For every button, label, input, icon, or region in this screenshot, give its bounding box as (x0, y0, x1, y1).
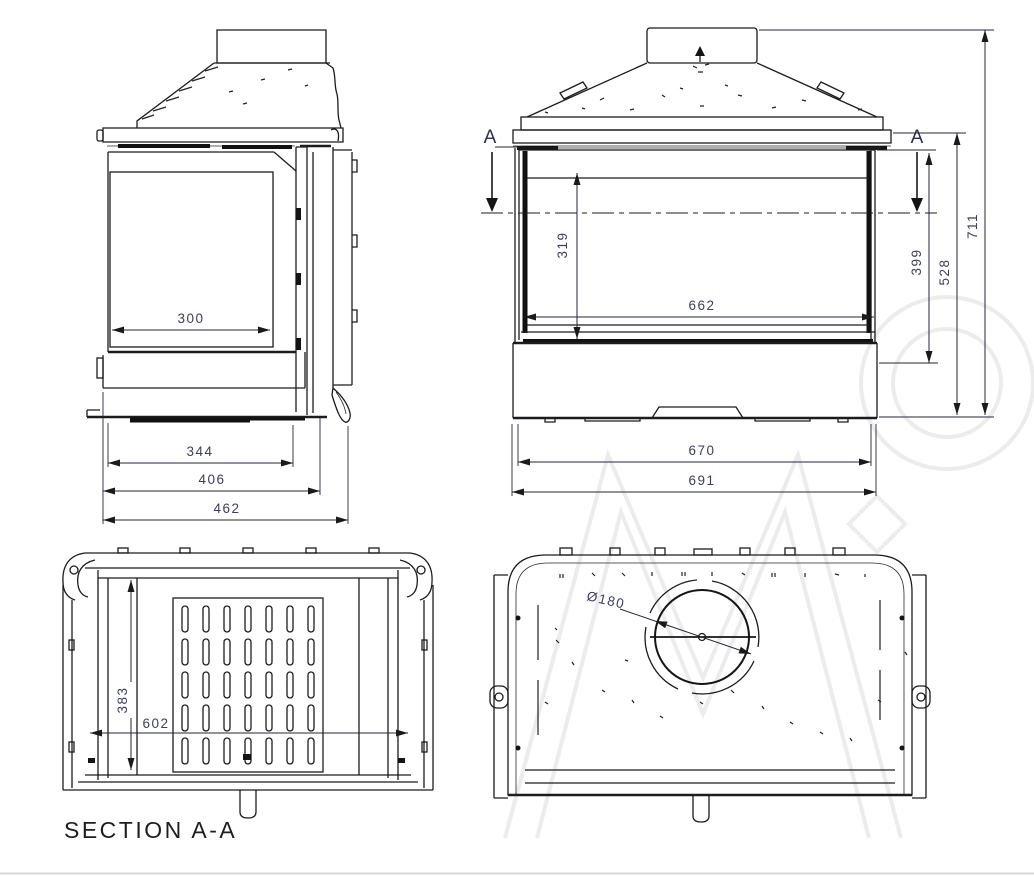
front-dimensions: 319 662 670 691 399 528 711 (512, 30, 994, 496)
front-body (481, 148, 937, 343)
front-hood (521, 63, 883, 130)
watermark-logo (505, 297, 1033, 838)
dim-side-base-width: 344 (186, 444, 213, 459)
dim-front-body-height: 528 (937, 258, 952, 285)
section-grate (173, 598, 323, 772)
dim-front-axis-height: 399 (909, 248, 924, 275)
page-footer-rule (0, 873, 1034, 875)
top-bottom-band (508, 770, 912, 822)
grate-slots (182, 606, 314, 764)
side-hood (137, 63, 341, 128)
section-view: 383 602 SECTION A-A (63, 548, 433, 843)
dim-front-glass-height: 319 (555, 231, 570, 258)
section-dimensions: 383 602 (90, 580, 408, 770)
section-marker-a-right: A (911, 127, 924, 148)
dim-side-total-depth: 462 (213, 501, 240, 516)
side-rear-bracket (333, 147, 357, 388)
section-marker-a-left: A (484, 127, 497, 148)
dim-front-total-width: 691 (688, 473, 715, 488)
front-plinth (513, 343, 877, 422)
dim-front-body-width: 670 (688, 443, 715, 458)
front-top-plate (513, 130, 891, 148)
dim-section-inner-width: 602 (142, 716, 169, 731)
front-flue-collar (647, 28, 757, 72)
drawing-page: 300 344 406 462 (0, 0, 1034, 876)
top-view: Ø180 (490, 548, 930, 822)
side-flue-collar (214, 30, 330, 63)
side-plinth (87, 352, 327, 420)
side-body (108, 147, 313, 415)
dim-section-inner-depth: 383 (115, 686, 130, 713)
side-view: 300 344 406 462 (87, 30, 357, 524)
section-label: SECTION A-A (64, 817, 237, 843)
technical-drawing: 300 344 406 462 (0, 0, 1034, 876)
side-door-handle (332, 388, 350, 422)
dim-front-glass-width: 662 (688, 298, 715, 313)
dim-side-glass-width: 300 (177, 311, 204, 326)
section-frame (63, 548, 432, 600)
dim-top-flue-diameter: Ø180 (585, 588, 626, 611)
dim-front-total-height: 711 (965, 213, 980, 239)
dim-side-body-depth: 406 (198, 472, 225, 487)
side-top-plate (97, 128, 343, 147)
